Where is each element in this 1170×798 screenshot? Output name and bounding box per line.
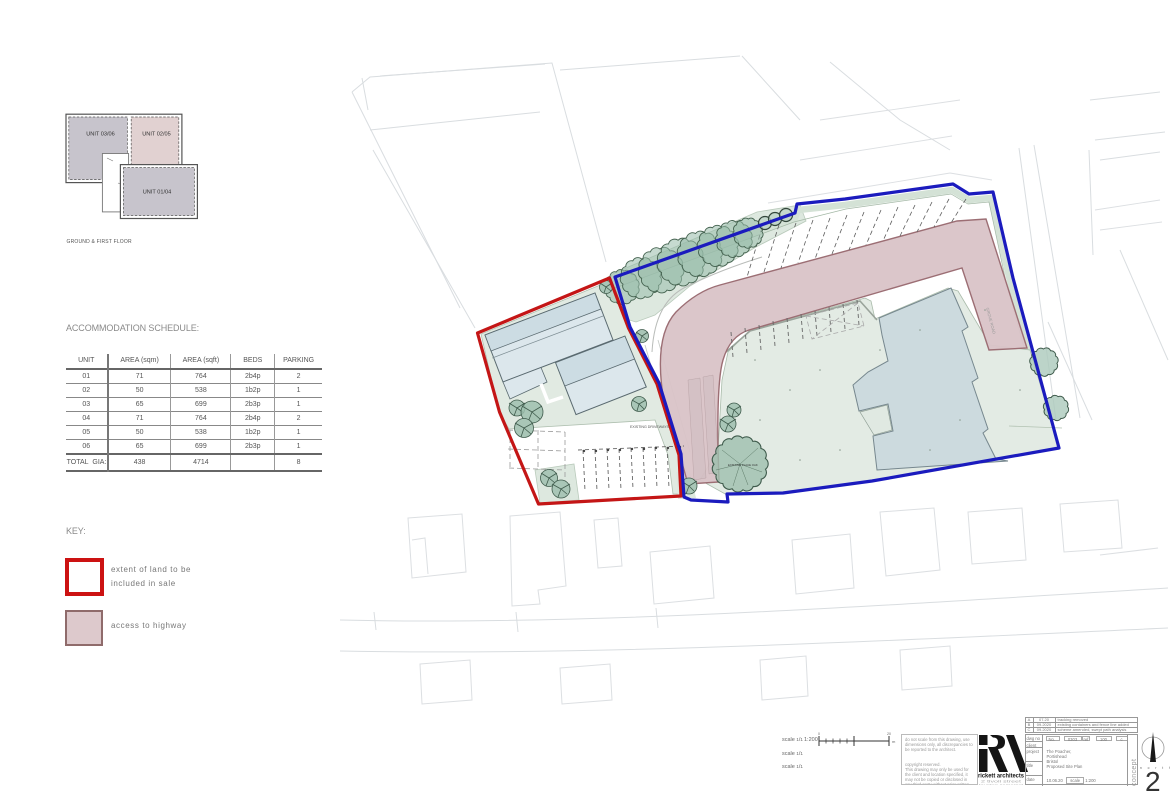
svg-text:UNIT 03/06: UNIT 03/06: [86, 132, 115, 138]
svg-text:m: m: [892, 739, 896, 744]
svg-text:EXISTING DRIVEWAYS: EXISTING DRIVEWAYS: [630, 425, 670, 429]
svg-text:UNIT 01/04: UNIT 01/04: [143, 189, 172, 195]
svg-text:0: 0: [818, 732, 820, 736]
svg-text:GROUND & FIRST FLOOR: GROUND & FIRST FLOOR: [67, 239, 132, 245]
svg-text:20: 20: [887, 732, 891, 736]
svg-text:EXISTING PLACE OAK: EXISTING PLACE OAK: [728, 463, 758, 467]
svg-text:UNIT 02/05: UNIT 02/05: [142, 132, 171, 138]
